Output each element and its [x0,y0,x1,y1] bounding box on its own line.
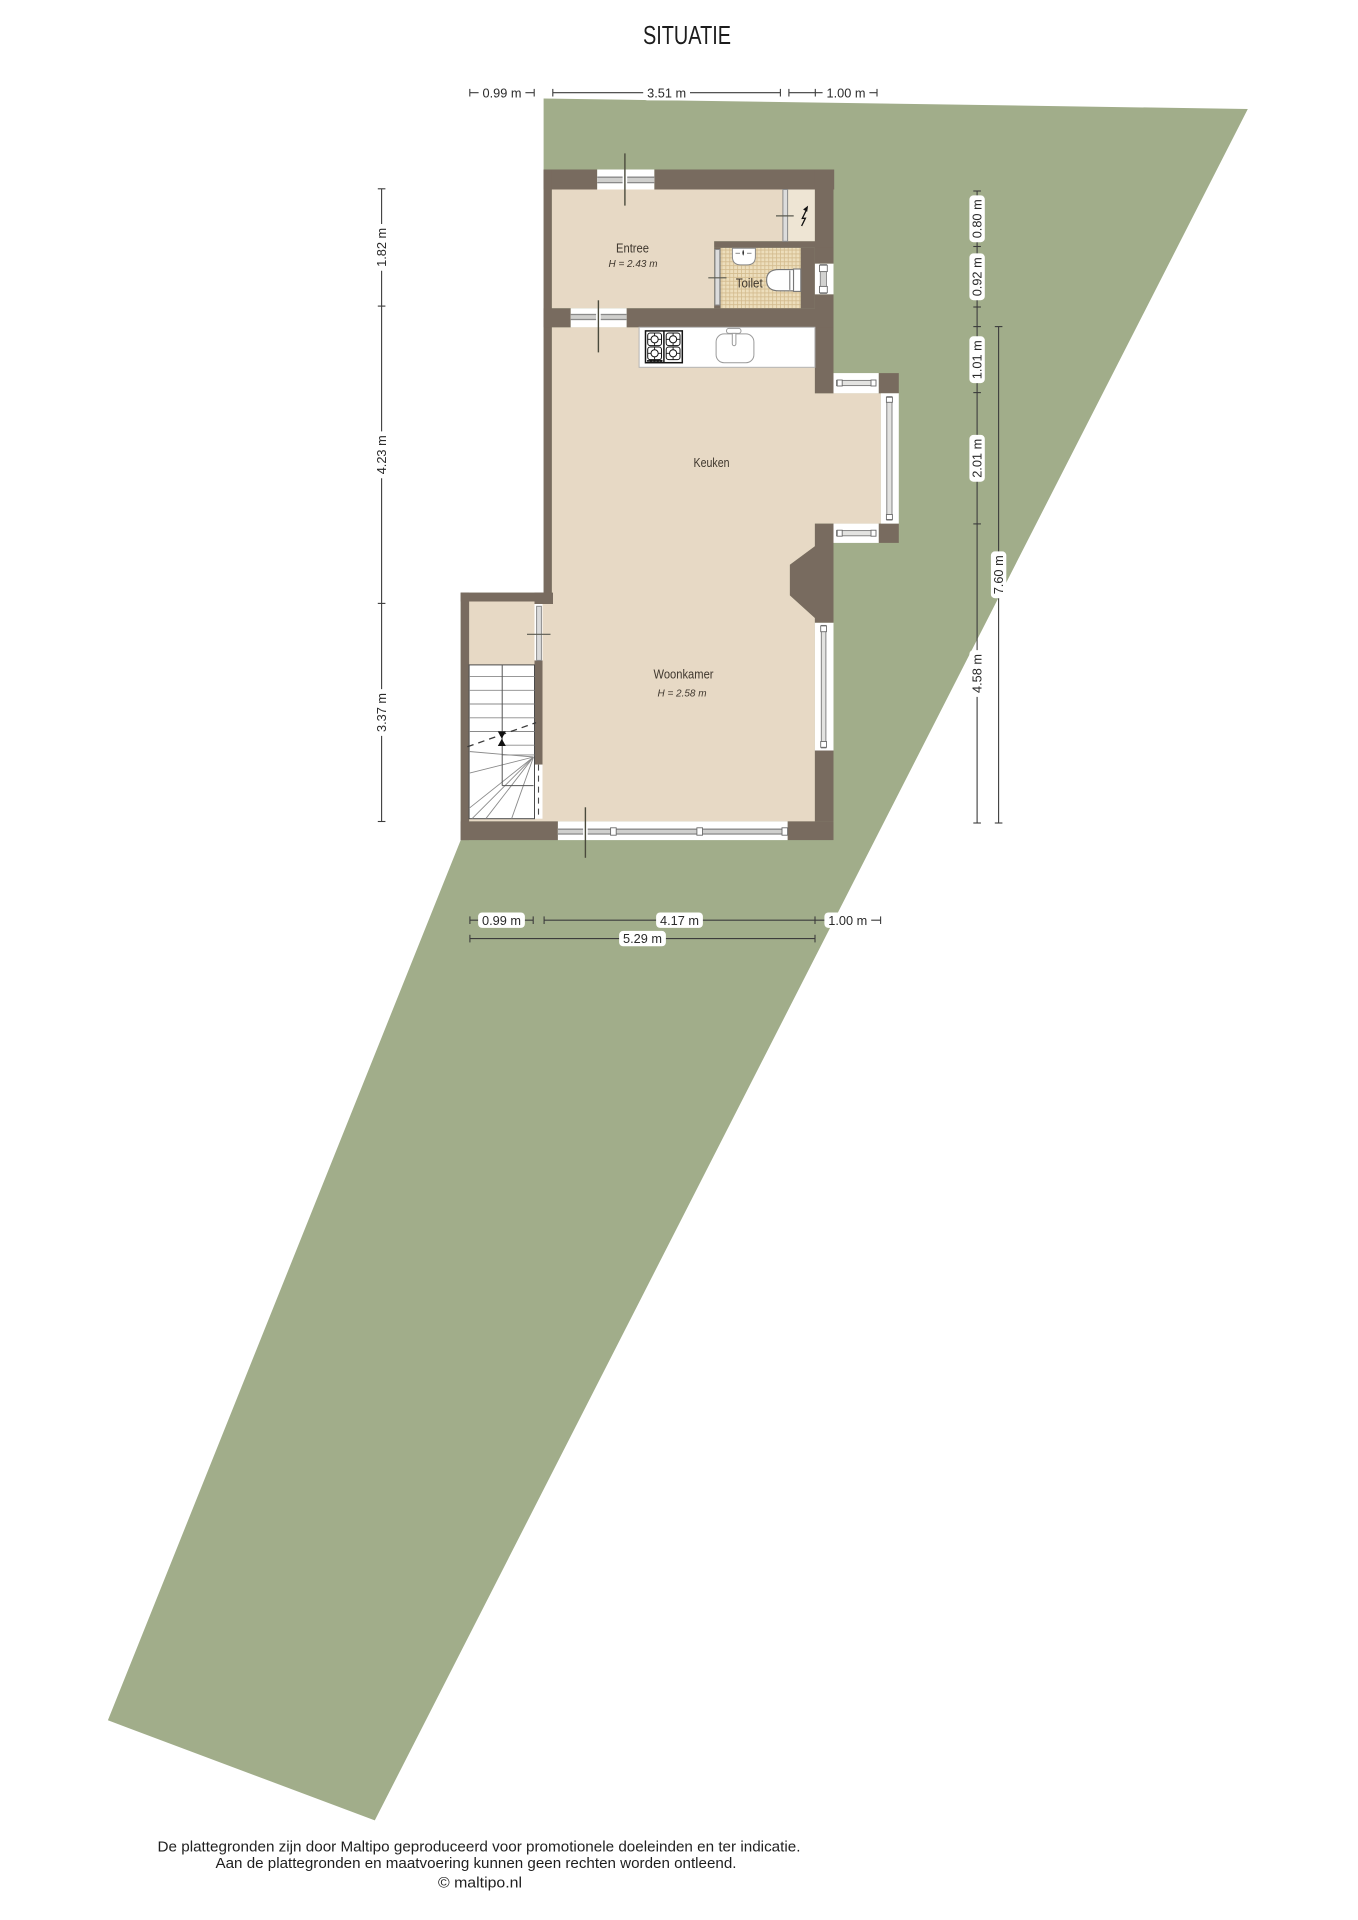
svg-text:H = 2.43 m: H = 2.43 m [609,259,658,270]
svg-text:De plattegronden zijn door Mal: De plattegronden zijn door Maltipo gepro… [158,1839,801,1856]
svg-text:H = 2.58 m: H = 2.58 m [658,688,707,699]
svg-text:0.99 m: 0.99 m [482,913,521,928]
svg-text:0.99 m: 0.99 m [483,85,522,100]
svg-text:1.82 m: 1.82 m [374,228,389,267]
svg-text:0.92 m: 0.92 m [970,257,985,296]
svg-text:© maltipo.nl: © maltipo.nl [438,1874,522,1891]
svg-text:2.01 m: 2.01 m [970,439,985,478]
svg-text:0.80 m: 0.80 m [970,199,985,238]
svg-text:Entree: Entree [616,240,649,255]
svg-text:4.23 m: 4.23 m [374,435,389,474]
svg-text:3.37 m: 3.37 m [374,693,389,732]
svg-text:SITUATIE: SITUATIE [643,22,731,50]
svg-text:1.00 m: 1.00 m [828,913,867,928]
svg-text:Woonkamer: Woonkamer [654,667,715,682]
svg-text:Keuken: Keuken [694,455,730,470]
svg-text:7.60 m: 7.60 m [991,555,1006,594]
svg-text:1.01 m: 1.01 m [970,340,985,379]
svg-text:1.00 m: 1.00 m [827,85,866,100]
svg-text:4.17 m: 4.17 m [660,913,699,928]
svg-text:4.58 m: 4.58 m [970,654,985,693]
svg-text:Toilet: Toilet [736,276,763,291]
svg-text:5.29 m: 5.29 m [623,931,662,946]
svg-text:3.51 m: 3.51 m [647,85,686,100]
svg-text:Aan de plattegronden en maatvo: Aan de plattegronden en maatvoering kunn… [216,1855,737,1872]
